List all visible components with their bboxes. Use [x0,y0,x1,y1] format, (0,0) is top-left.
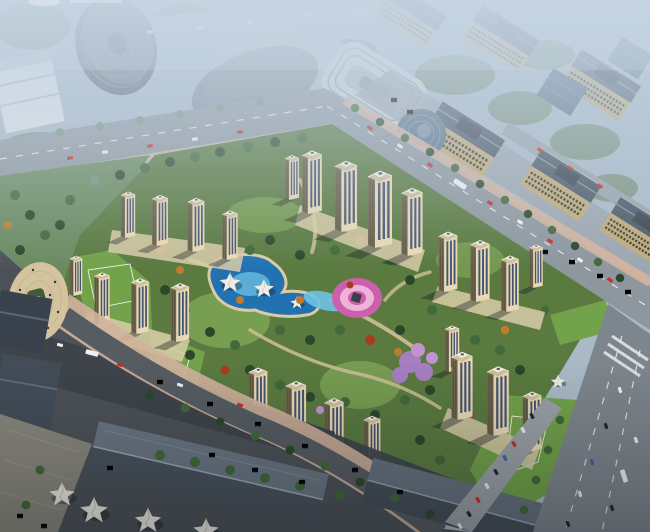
haze-top-strip [0,0,650,70]
aerial-rendering-canvas [0,0,650,532]
bottom-shade-overlay [0,360,650,532]
flower-garden [332,278,382,318]
aerial-rendering [0,0,650,532]
